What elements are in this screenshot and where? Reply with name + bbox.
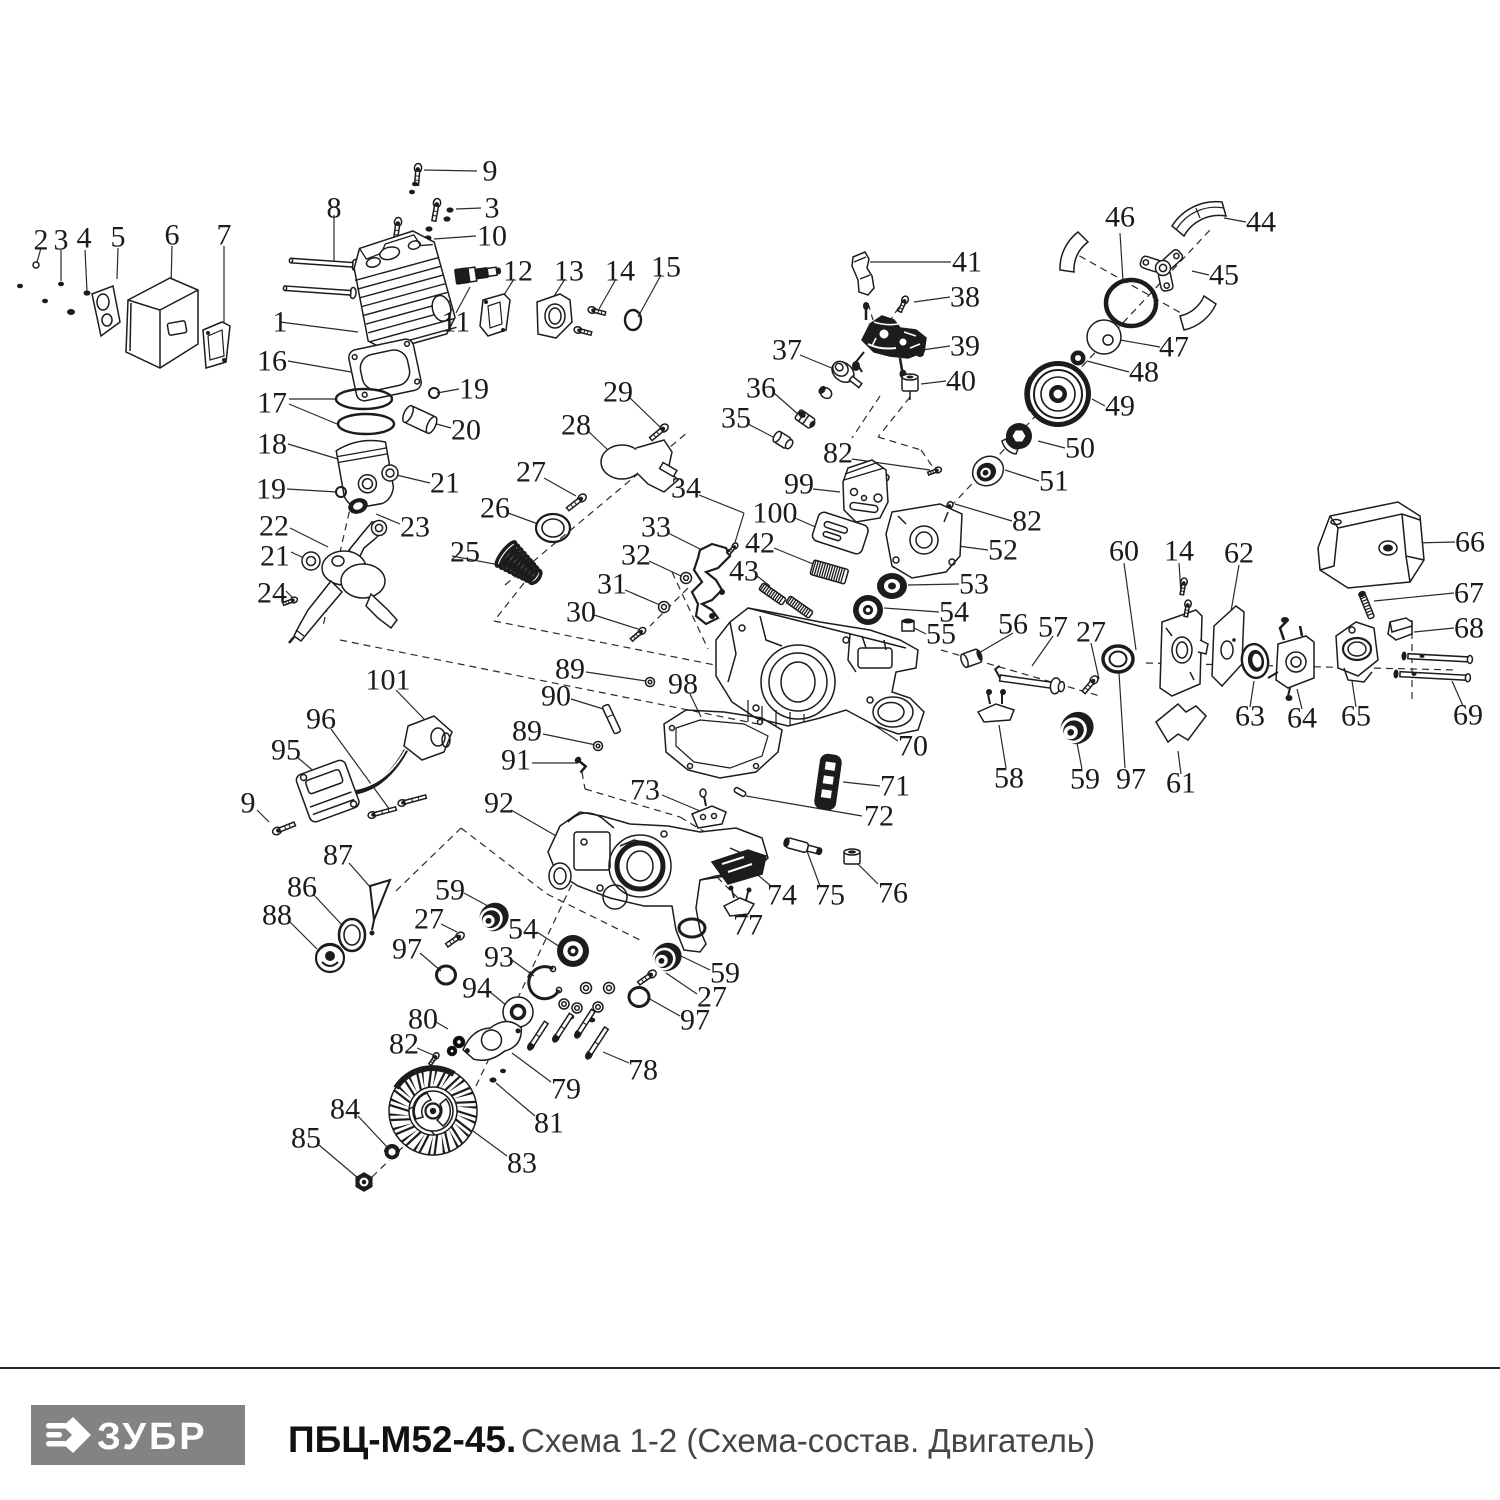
svg-text:21: 21	[430, 467, 460, 500]
svg-text:81: 81	[534, 1107, 564, 1140]
svg-text:12: 12	[503, 255, 533, 288]
svg-text:92: 92	[484, 787, 514, 820]
svg-text:61: 61	[1166, 767, 1196, 800]
svg-text:ПБЦ-М52-45.: ПБЦ-М52-45.	[288, 1419, 516, 1460]
svg-text:3: 3	[54, 224, 69, 257]
svg-text:94: 94	[462, 972, 492, 1005]
svg-text:ЗУБР: ЗУБР	[97, 1416, 208, 1458]
svg-text:100: 100	[753, 497, 798, 530]
svg-text:97: 97	[1116, 763, 1146, 796]
svg-text:43: 43	[729, 555, 759, 588]
svg-text:101: 101	[366, 664, 411, 697]
svg-text:9: 9	[241, 787, 256, 820]
svg-text:23: 23	[400, 511, 430, 544]
svg-text:79: 79	[551, 1073, 581, 1106]
svg-text:16: 16	[257, 345, 287, 378]
svg-text:63: 63	[1235, 700, 1265, 733]
svg-text:85: 85	[291, 1122, 321, 1155]
svg-text:27: 27	[1076, 616, 1106, 649]
svg-text:27: 27	[414, 903, 444, 936]
svg-text:76: 76	[878, 877, 908, 910]
svg-text:34: 34	[671, 472, 701, 505]
svg-text:15: 15	[651, 251, 681, 284]
svg-text:71: 71	[880, 770, 910, 803]
svg-text:10: 10	[477, 220, 507, 253]
svg-text:59: 59	[1070, 763, 1100, 796]
svg-text:40: 40	[946, 365, 976, 398]
svg-text:56: 56	[998, 608, 1028, 641]
svg-text:45: 45	[1209, 259, 1239, 292]
svg-text:88: 88	[262, 899, 292, 932]
svg-text:39: 39	[950, 330, 980, 363]
svg-text:20: 20	[451, 414, 481, 447]
svg-text:21: 21	[260, 540, 290, 573]
svg-text:52: 52	[988, 534, 1018, 567]
svg-text:91: 91	[501, 744, 531, 777]
svg-text:24: 24	[257, 577, 287, 610]
svg-text:97: 97	[392, 933, 422, 966]
svg-text:77: 77	[733, 909, 763, 942]
svg-text:48: 48	[1129, 356, 1159, 389]
svg-text:27: 27	[516, 456, 546, 489]
svg-text:7: 7	[217, 219, 232, 252]
svg-text:96: 96	[306, 703, 336, 736]
svg-text:74: 74	[767, 879, 797, 912]
svg-text:44: 44	[1246, 206, 1276, 239]
svg-text:84: 84	[330, 1093, 360, 1126]
svg-text:49: 49	[1105, 390, 1135, 423]
svg-text:30: 30	[566, 596, 596, 629]
svg-text:75: 75	[815, 879, 845, 912]
svg-text:51: 51	[1039, 465, 1069, 498]
svg-text:Схема 1-2 (Схема-состав. Двига: Схема 1-2 (Схема-состав. Двигатель)	[521, 1422, 1095, 1459]
svg-text:47: 47	[1159, 331, 1189, 364]
svg-text:38: 38	[950, 281, 980, 314]
svg-text:72: 72	[864, 800, 894, 833]
svg-text:5: 5	[111, 221, 126, 254]
svg-text:6: 6	[165, 219, 180, 252]
svg-text:41: 41	[952, 246, 982, 279]
svg-text:64: 64	[1287, 702, 1317, 735]
svg-text:13: 13	[554, 255, 584, 288]
svg-text:57: 57	[1038, 611, 1068, 644]
svg-text:93: 93	[484, 941, 514, 974]
svg-text:82: 82	[823, 437, 853, 470]
svg-text:98: 98	[668, 668, 698, 701]
svg-text:31: 31	[597, 568, 627, 601]
svg-text:18: 18	[257, 428, 287, 461]
svg-text:78: 78	[628, 1054, 658, 1087]
svg-text:50: 50	[1065, 432, 1095, 465]
svg-text:26: 26	[480, 492, 510, 525]
svg-text:22: 22	[259, 510, 289, 543]
svg-text:14: 14	[1164, 535, 1194, 568]
svg-text:2: 2	[34, 224, 49, 257]
svg-text:69: 69	[1453, 699, 1483, 732]
svg-text:70: 70	[898, 730, 928, 763]
svg-text:73: 73	[630, 774, 660, 807]
svg-text:17: 17	[257, 387, 287, 420]
svg-text:68: 68	[1454, 612, 1484, 645]
svg-text:19: 19	[256, 473, 286, 506]
svg-text:1: 1	[273, 306, 288, 339]
svg-text:95: 95	[271, 734, 301, 767]
svg-text:35: 35	[721, 402, 751, 435]
svg-text:55: 55	[926, 618, 956, 651]
svg-text:46: 46	[1105, 201, 1135, 234]
svg-text:65: 65	[1341, 700, 1371, 733]
svg-text:36: 36	[746, 372, 776, 405]
svg-text:29: 29	[603, 376, 633, 409]
svg-text:66: 66	[1455, 526, 1485, 559]
svg-text:4: 4	[77, 222, 92, 255]
svg-text:8: 8	[327, 192, 342, 225]
svg-text:28: 28	[561, 409, 591, 442]
svg-text:82: 82	[389, 1028, 419, 1061]
svg-text:37: 37	[772, 334, 802, 367]
svg-text:60: 60	[1109, 535, 1139, 568]
svg-text:90: 90	[541, 680, 571, 713]
svg-text:11: 11	[442, 306, 471, 339]
svg-text:83: 83	[507, 1147, 537, 1180]
svg-text:14: 14	[605, 255, 635, 288]
svg-text:67: 67	[1454, 577, 1484, 610]
svg-text:25: 25	[450, 536, 480, 569]
svg-text:97: 97	[680, 1004, 710, 1037]
svg-text:19: 19	[459, 373, 489, 406]
svg-text:9: 9	[483, 155, 498, 188]
svg-text:62: 62	[1224, 537, 1254, 570]
svg-text:58: 58	[994, 762, 1024, 795]
svg-text:87: 87	[323, 839, 353, 872]
